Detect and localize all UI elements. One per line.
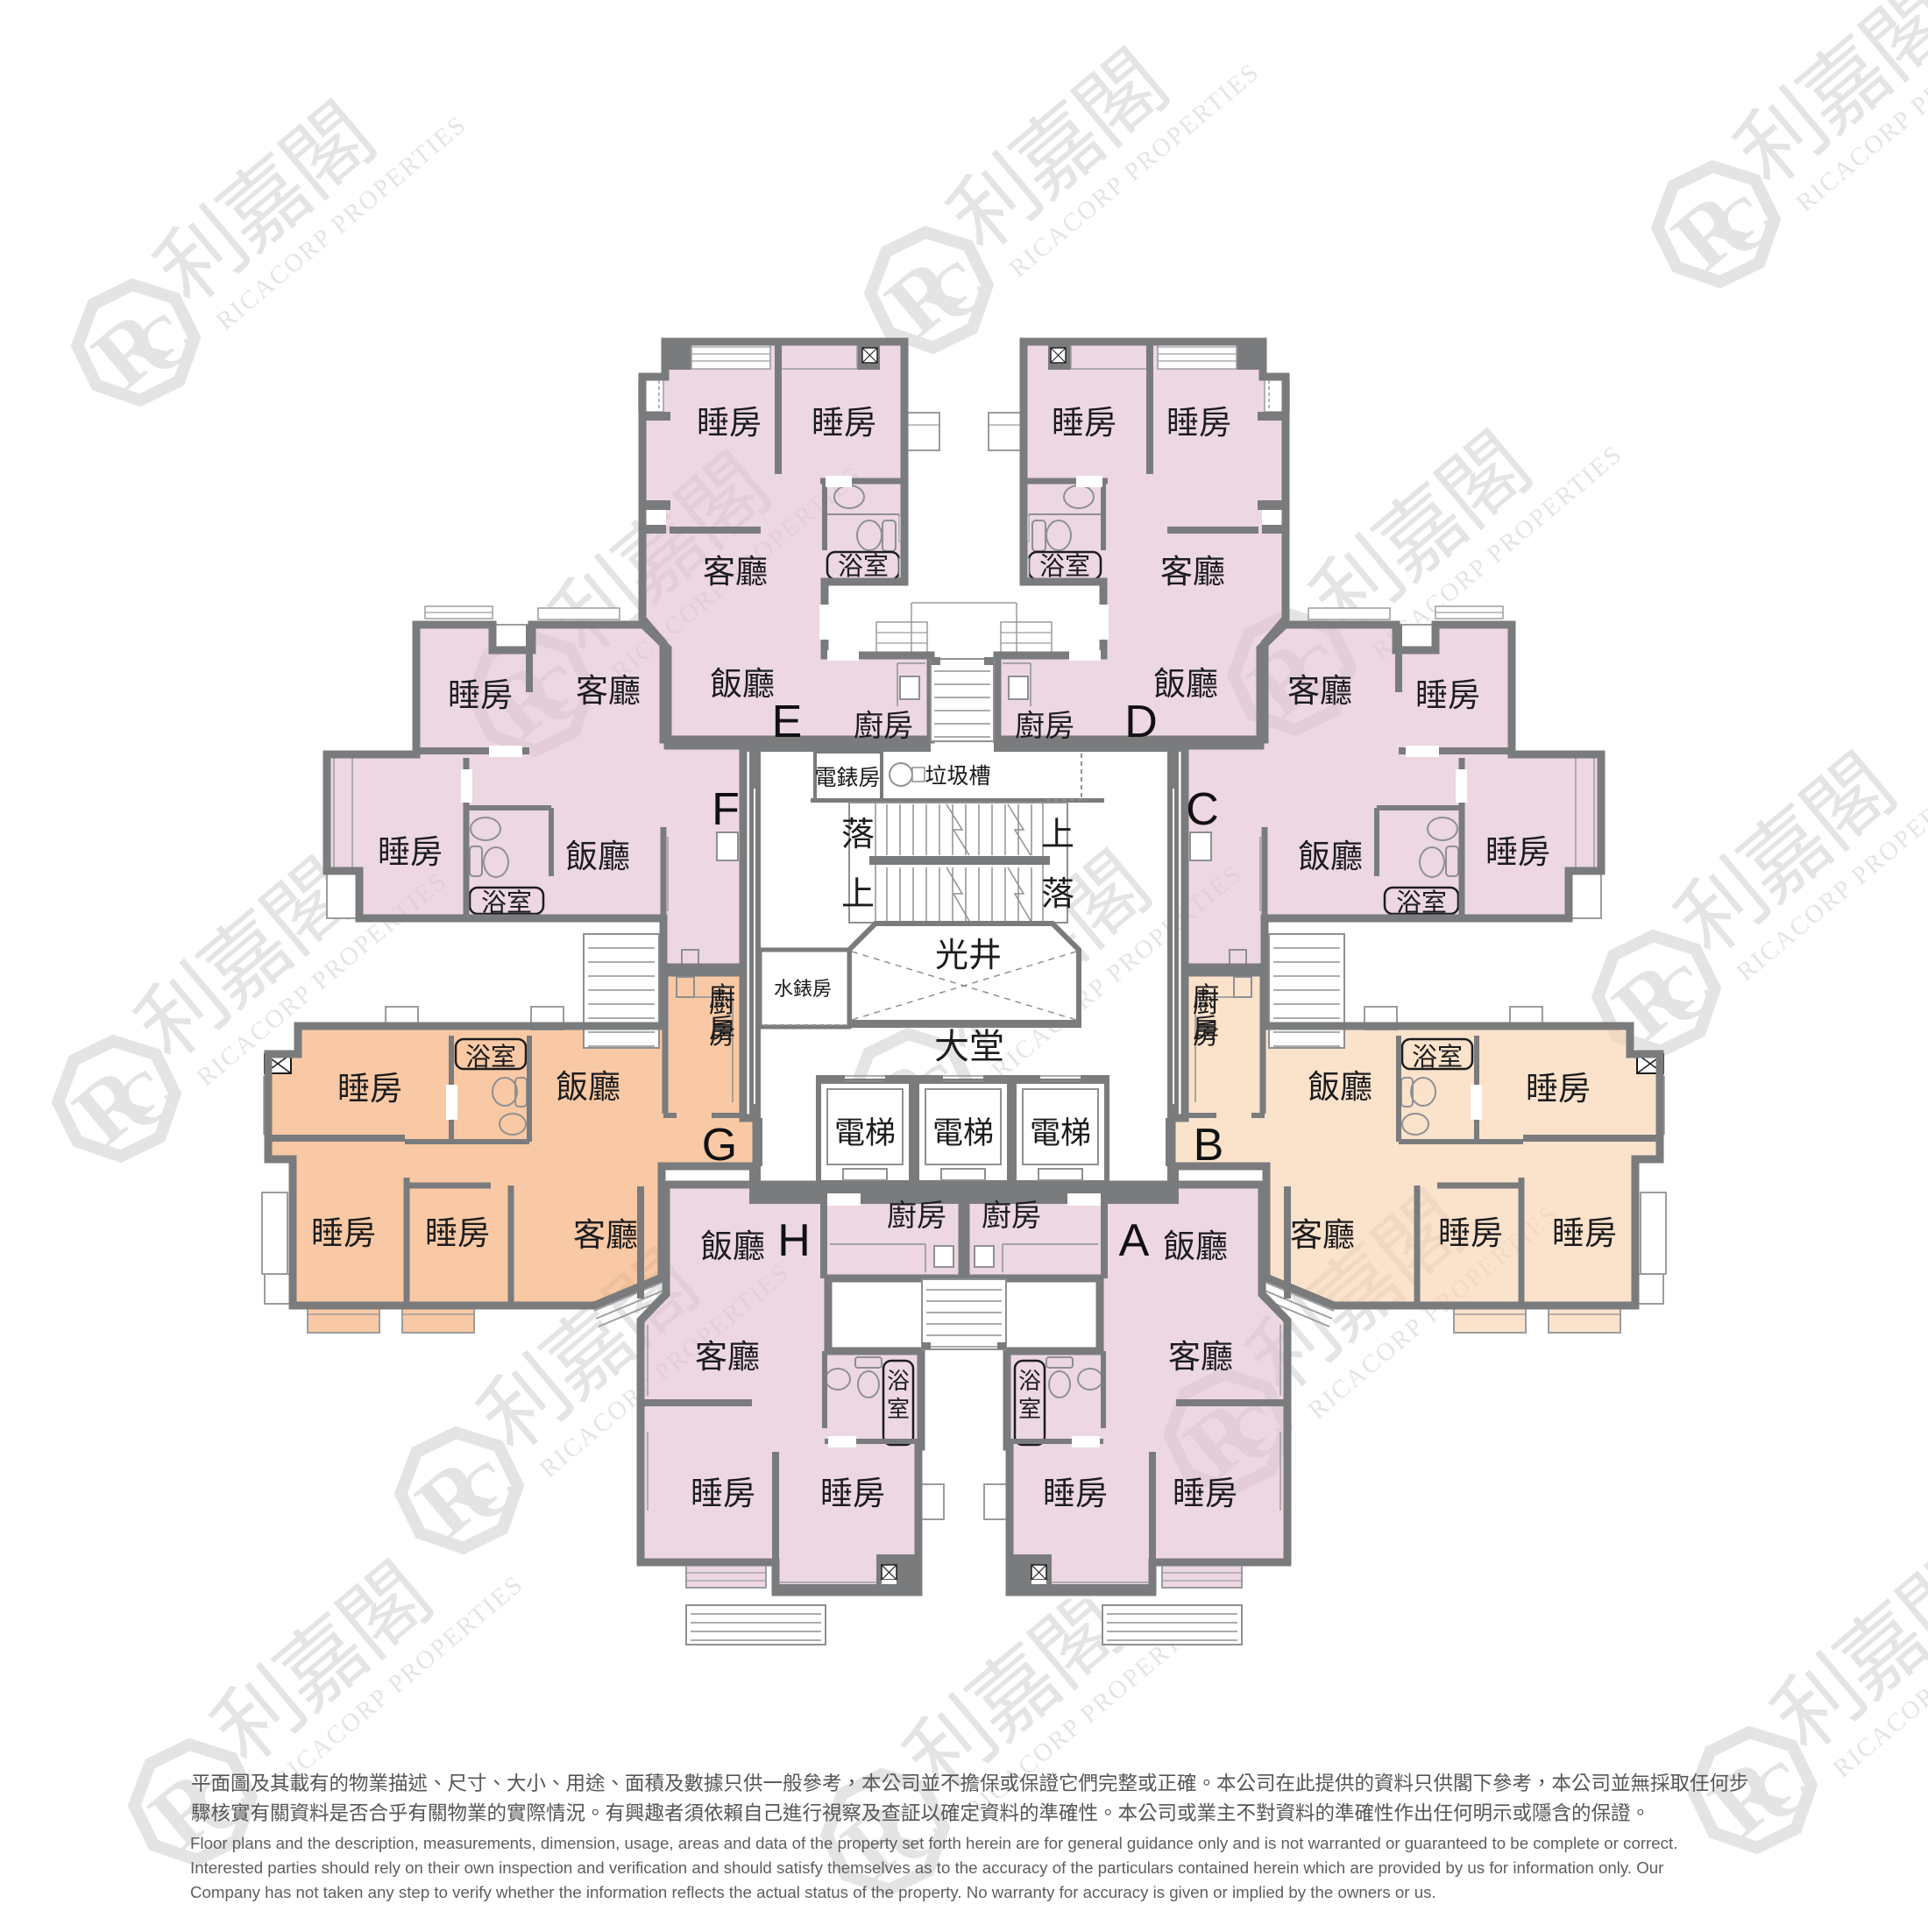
svg-text:飯廳: 飯廳 [1163,1220,1228,1267]
svg-text:浴室: 浴室 [838,546,889,583]
svg-text:廚房: 廚房 [854,702,913,745]
svg-text:飯廳: 飯廳 [565,830,630,877]
svg-text:睡房: 睡房 [697,396,762,443]
svg-text:大堂: 大堂 [934,1018,1004,1069]
svg-text:上: 上 [1041,807,1074,855]
svg-text:睡房: 睡房 [378,825,443,873]
svg-text:客廳: 客廳 [1287,664,1352,711]
svg-text:睡房: 睡房 [1526,1062,1591,1109]
svg-text:睡房: 睡房 [812,396,876,443]
svg-text:室: 室 [1018,1391,1041,1424]
svg-text:C: C [1186,784,1219,835]
svg-text:A: A [1119,1215,1150,1266]
svg-text:睡房: 睡房 [691,1467,755,1514]
svg-text:浴室: 浴室 [1412,1037,1463,1073]
svg-text:H: H [777,1215,811,1266]
svg-text:電錶房: 電錶房 [814,761,880,792]
svg-text:水錶房: 水錶房 [774,973,832,1001]
svg-text:電梯: 電梯 [834,1108,896,1153]
svg-text:室: 室 [887,1391,910,1424]
svg-text:飯廳: 飯廳 [556,1060,620,1108]
svg-text:浴室: 浴室 [481,882,532,919]
svg-text:睡房: 睡房 [1438,1207,1503,1254]
svg-text:睡房: 睡房 [1043,1467,1108,1514]
svg-text:睡房: 睡房 [1552,1207,1617,1254]
svg-text:浴室: 浴室 [1039,546,1090,583]
svg-text:垃圾槽: 垃圾槽 [925,759,990,790]
svg-text:飯廳: 飯廳 [700,1220,765,1267]
svg-text:飯廳: 飯廳 [1153,657,1218,704]
svg-text:睡房: 睡房 [1052,396,1116,443]
svg-text:浴室: 浴室 [1396,882,1447,919]
svg-text:睡房: 睡房 [425,1207,490,1254]
svg-text:驟核實有關資料是否合乎有關物業的實際情況。有興趣者須依賴自己: 驟核實有關資料是否合乎有關物業的實際情況。有興趣者須依賴自己進行視察及查証以確定… [191,1798,1650,1826]
svg-text:Floor plans and the descriptio: Floor plans and the description, measure… [190,1834,1677,1852]
svg-text:客廳: 客廳 [703,545,768,592]
svg-text:落: 落 [1041,867,1074,915]
svg-text:廚房: 廚房 [982,1192,1041,1235]
svg-text:房: 房 [1193,1007,1219,1045]
svg-text:客廳: 客廳 [1290,1208,1355,1256]
svg-text:廚房: 廚房 [1015,702,1074,745]
svg-text:客廳: 客廳 [576,664,641,711]
svg-text:B: B [1194,1120,1224,1171]
svg-text:睡房: 睡房 [448,669,513,716]
svg-text:睡房: 睡房 [1415,669,1480,716]
svg-text:睡房: 睡房 [820,1467,885,1514]
svg-text:客廳: 客廳 [695,1330,760,1377]
svg-text:Company has not taken any step: Company has not taken any step to verify… [190,1883,1436,1901]
svg-text:電梯: 電梯 [1030,1108,1091,1153]
svg-text:廚房: 廚房 [887,1192,946,1235]
svg-text:落: 落 [841,807,875,855]
svg-text:睡房: 睡房 [1166,396,1231,443]
svg-text:上: 上 [841,867,875,915]
svg-text:睡房: 睡房 [311,1207,376,1254]
svg-text:飯廳: 飯廳 [1298,830,1363,877]
svg-text:睡房: 睡房 [1173,1467,1237,1514]
svg-text:光井: 光井 [935,928,1002,976]
svg-text:D: D [1124,697,1158,747]
svg-text:G: G [702,1120,737,1171]
svg-text:客廳: 客廳 [1160,545,1225,592]
svg-text:客廳: 客廳 [573,1208,638,1256]
svg-text:電梯: 電梯 [932,1108,994,1153]
svg-text:睡房: 睡房 [1485,825,1550,873]
svg-text:房: 房 [709,1007,735,1045]
svg-text:F: F [712,784,740,835]
svg-text:Interested parties should rely: Interested parties should rely on their … [190,1858,1663,1877]
svg-text:客廳: 客廳 [1168,1330,1233,1377]
svg-text:睡房: 睡房 [337,1062,402,1109]
svg-text:飯廳: 飯廳 [1308,1060,1372,1108]
svg-text:平面圖及其載有的物業描述、尺寸、大小、用途、面積及數據只供一: 平面圖及其載有的物業描述、尺寸、大小、用途、面積及數據只供一般參考，本公司並不擔… [191,1768,1749,1796]
svg-text:E: E [772,697,803,747]
svg-text:浴室: 浴室 [465,1037,516,1073]
svg-text:飯廳: 飯廳 [710,657,775,704]
